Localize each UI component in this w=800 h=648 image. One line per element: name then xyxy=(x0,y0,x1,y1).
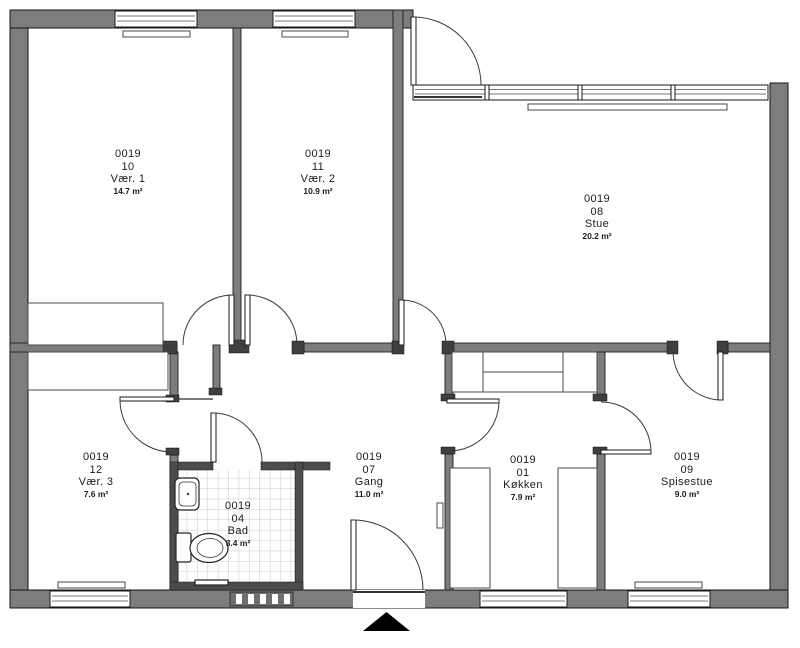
room-label-bad: 0019 04 Bad 3.4 m² xyxy=(178,500,298,548)
floor-plan-drawing xyxy=(0,0,800,648)
room-number: 07 xyxy=(309,464,429,477)
wardrobe-vaer-1 xyxy=(28,303,163,345)
room-name: Vær. 3 xyxy=(36,476,156,489)
room-number: 08 xyxy=(537,206,657,219)
radiator-gang xyxy=(437,503,443,528)
room-number: 11 xyxy=(258,161,378,174)
door-vaer-2 xyxy=(245,295,297,345)
room-name: Køkken xyxy=(463,479,583,492)
window-vaer-2 xyxy=(273,11,355,27)
door-stue-spisestue xyxy=(673,351,723,400)
room-area: 3.4 m² xyxy=(178,538,298,548)
vent-grate xyxy=(230,592,293,606)
wall-kokken-spisestue-upper xyxy=(597,352,605,395)
window-band-stue xyxy=(413,85,768,100)
wardrobe-vaer-3 xyxy=(28,352,168,390)
room-number: 09 xyxy=(627,464,747,477)
wall-mid-center xyxy=(304,343,393,352)
kitchen-counter-top xyxy=(452,352,597,392)
room-id: 0019 xyxy=(537,193,657,206)
room-label-spisestue: 0019 09 Spisestue 9.0 m² xyxy=(627,451,747,499)
room-area: 10.9 m² xyxy=(258,186,378,196)
room-name: Spisestue xyxy=(627,476,747,489)
door-terrace xyxy=(411,17,481,85)
room-id: 0019 xyxy=(68,148,188,161)
room-number: 10 xyxy=(68,161,188,174)
window-vaer-1 xyxy=(115,11,197,27)
floor-plan: 0019 10 Vær. 1 14.7 m² 0019 11 Vær. 2 10… xyxy=(0,0,800,648)
window-spisestue xyxy=(628,591,710,607)
radiator-vaer-3 xyxy=(58,582,125,588)
room-label-vaer-2: 0019 11 Vær. 2 10.9 m² xyxy=(258,148,378,196)
room-number: 01 xyxy=(463,467,583,480)
door-vaer-1 xyxy=(183,295,234,345)
room-number: 04 xyxy=(178,513,298,526)
exterior-wall-left xyxy=(10,10,28,608)
room-name: Vær. 2 xyxy=(258,173,378,186)
door-kokken xyxy=(447,399,499,451)
radiator-spisestue xyxy=(635,582,702,588)
entrance-arrow-icon xyxy=(363,612,410,631)
wall-kokken-spisestue-lower xyxy=(597,454,605,590)
room-number: 12 xyxy=(36,464,156,477)
room-label-stue: 0019 08 Stue 20.2 m² xyxy=(537,193,657,241)
wall-vaer2-stue xyxy=(393,10,403,343)
room-name: Vær. 1 xyxy=(68,173,188,186)
room-name: Gang xyxy=(309,476,429,489)
exterior-wall-right xyxy=(770,83,788,608)
room-label-vaer-1: 0019 10 Vær. 1 14.7 m² xyxy=(68,148,188,196)
radiator-vaer-2 xyxy=(282,31,348,37)
room-id: 0019 xyxy=(178,500,298,513)
room-area: 20.2 m² xyxy=(537,231,657,241)
door-kokken-spisestue xyxy=(601,402,651,454)
room-area: 7.6 m² xyxy=(36,489,156,499)
room-id: 0019 xyxy=(258,148,378,161)
radiator-stue xyxy=(528,104,727,110)
room-area: 9.0 m² xyxy=(627,489,747,499)
room-id: 0019 xyxy=(309,451,429,464)
window-kokken xyxy=(480,591,567,607)
room-label-kokken: 0019 01 Køkken 7.9 m² xyxy=(463,454,583,502)
room-name: Bad xyxy=(178,525,298,538)
room-id: 0019 xyxy=(36,451,156,464)
window-vaer-3 xyxy=(50,591,130,607)
room-label-gang: 0019 07 Gang 11.0 m² xyxy=(309,451,429,499)
room-area: 14.7 m² xyxy=(68,186,188,196)
wall-gang-niche xyxy=(213,345,220,389)
door-entrance xyxy=(351,520,425,608)
room-id: 0019 xyxy=(627,451,747,464)
wall-vaer3-gang-upper xyxy=(170,352,178,396)
wall-mid-east xyxy=(453,343,668,352)
bathroom-wall-top-left xyxy=(178,462,213,470)
radiator-vaer-1 xyxy=(123,31,190,37)
bathroom-wall-bottom xyxy=(170,582,303,590)
door-vaer-3 xyxy=(120,397,174,452)
room-name: Stue xyxy=(537,218,657,231)
room-area: 7.9 m² xyxy=(463,492,583,502)
bath-mat xyxy=(195,580,228,585)
room-id: 0019 xyxy=(463,454,583,467)
furniture xyxy=(28,31,727,588)
room-label-vaer-3: 0019 12 Vær. 3 7.6 m² xyxy=(36,451,156,499)
room-area: 11.0 m² xyxy=(309,489,429,499)
door-bad xyxy=(211,413,262,462)
wall-mid-far-east xyxy=(728,343,770,352)
door-stue xyxy=(399,300,446,345)
